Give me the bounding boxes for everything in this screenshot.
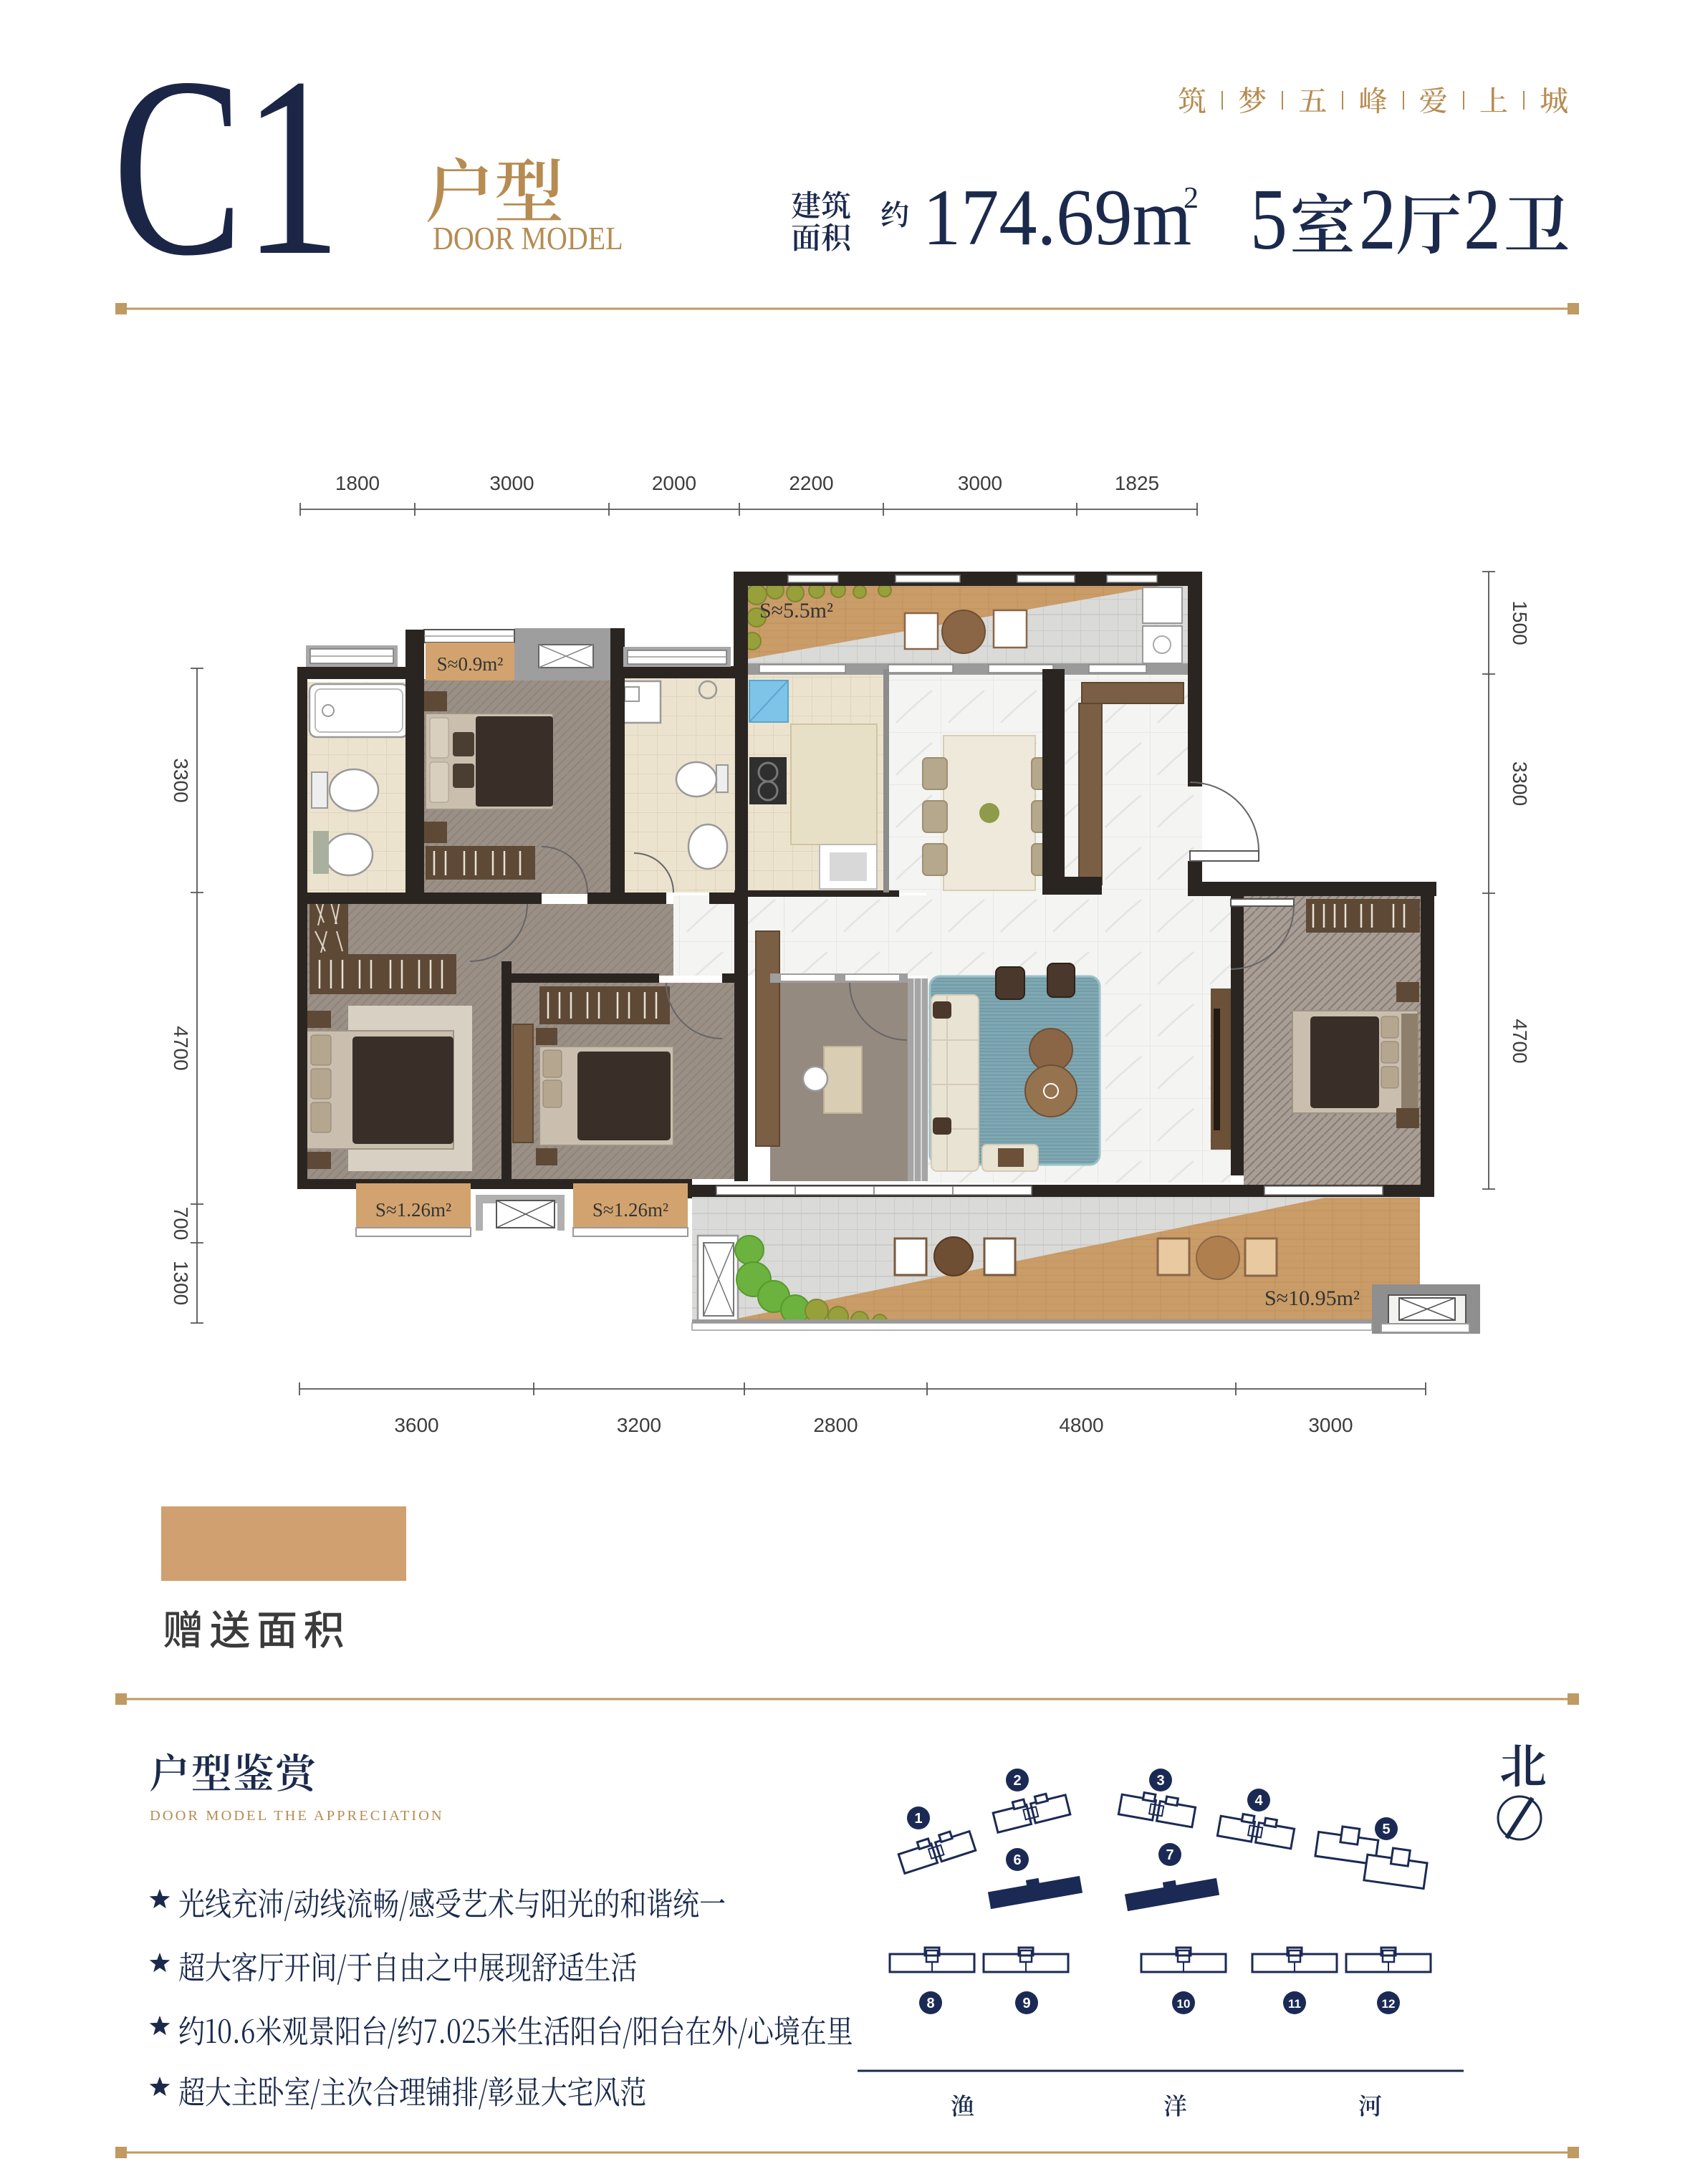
svg-text:8: 8 (926, 1996, 934, 2011)
svg-text:5: 5 (1382, 1822, 1390, 1837)
svg-text:2: 2 (1359, 171, 1396, 268)
svg-text:2: 2 (1013, 1773, 1021, 1789)
svg-text:5: 5 (1250, 171, 1287, 268)
svg-text:S≈1.26m²: S≈1.26m² (375, 1199, 451, 1221)
svg-text:S≈0.9m²: S≈0.9m² (437, 653, 504, 675)
svg-text:S≈1.26m²: S≈1.26m² (592, 1199, 668, 1221)
svg-text:1500: 1500 (1509, 600, 1531, 645)
svg-text:2800: 2800 (813, 1414, 858, 1436)
svg-text:C1: C1 (112, 24, 342, 309)
svg-text:1800: 1800 (335, 472, 380, 494)
svg-text:1825: 1825 (1115, 472, 1159, 494)
svg-text:3300: 3300 (170, 758, 192, 802)
svg-text:3000: 3000 (958, 472, 1002, 494)
svg-text:2200: 2200 (789, 472, 833, 494)
svg-text:10: 10 (1177, 1997, 1191, 2011)
svg-text:1300: 1300 (170, 1261, 192, 1305)
svg-text:DOOR MODEL THE APPRECIATION: DOOR MODEL THE APPRECIATION (150, 1808, 444, 1824)
svg-text:4: 4 (1254, 1793, 1263, 1809)
svg-text:2: 2 (1184, 182, 1199, 215)
svg-text:12: 12 (1382, 1997, 1396, 2011)
svg-text:700: 700 (170, 1207, 192, 1241)
svg-text:S≈5.5m²: S≈5.5m² (759, 599, 833, 622)
svg-text:4700: 4700 (1509, 1019, 1531, 1063)
svg-text:3: 3 (1156, 1773, 1164, 1789)
svg-text:2: 2 (1464, 171, 1501, 268)
svg-text:S≈10.95m²: S≈10.95m² (1264, 1286, 1360, 1310)
svg-text:1: 1 (914, 1811, 922, 1827)
svg-text:4800: 4800 (1059, 1414, 1103, 1436)
svg-text:4700: 4700 (170, 1026, 192, 1070)
svg-text:3000: 3000 (489, 472, 534, 494)
svg-text:11: 11 (1288, 1997, 1301, 2011)
svg-text:6: 6 (1013, 1852, 1021, 1868)
svg-text:7: 7 (1166, 1847, 1173, 1863)
svg-text:3200: 3200 (617, 1414, 661, 1436)
svg-text:3300: 3300 (1509, 761, 1531, 806)
svg-text:174.69m: 174.69m (923, 173, 1191, 262)
svg-text:3000: 3000 (1308, 1414, 1353, 1436)
svg-text:3600: 3600 (394, 1414, 438, 1436)
svg-text:DOOR MODEL: DOOR MODEL (433, 221, 623, 257)
svg-text:2000: 2000 (652, 472, 696, 494)
svg-text:9: 9 (1022, 1996, 1030, 2011)
